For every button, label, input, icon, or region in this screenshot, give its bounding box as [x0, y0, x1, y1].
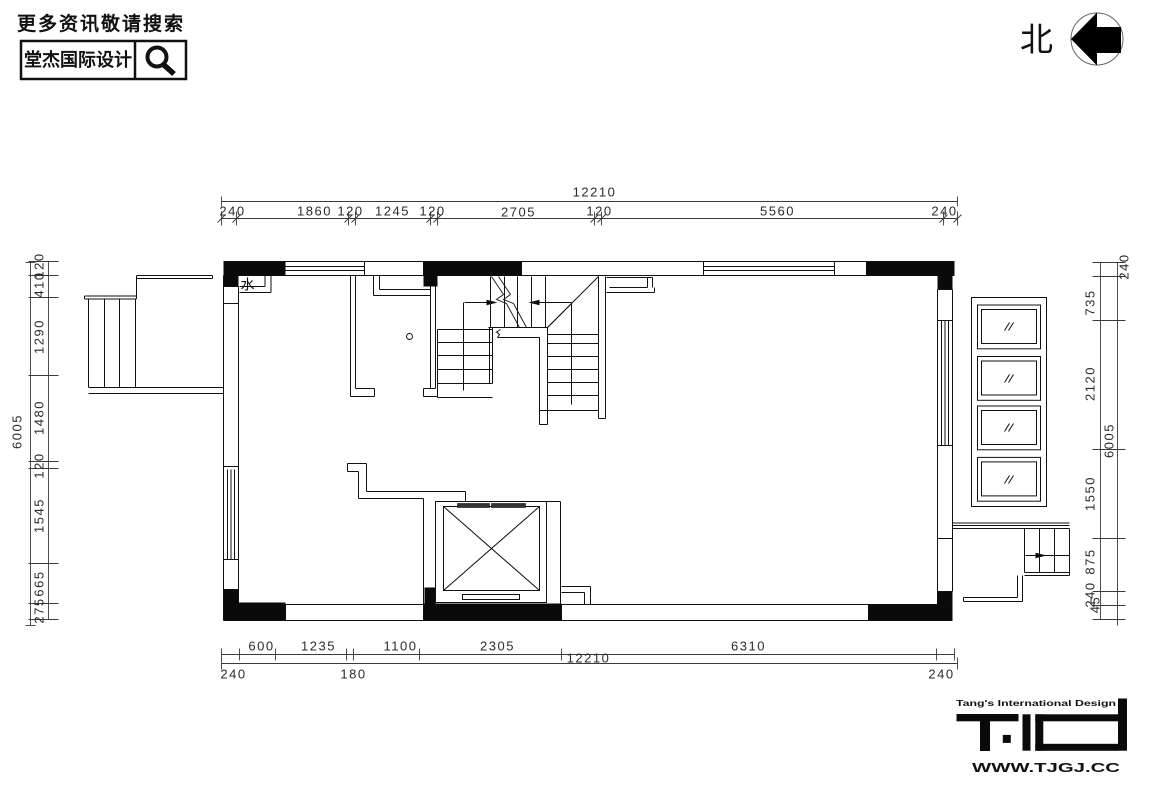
svg-text:180: 180: [340, 667, 366, 682]
svg-text:更多资讯敬请搜索: 更多资讯敬请搜索: [17, 12, 185, 35]
svg-text:275: 275: [32, 597, 47, 623]
svg-text:240: 240: [219, 204, 245, 219]
svg-text:1245: 1245: [375, 204, 410, 219]
svg-text:45: 45: [1088, 596, 1103, 613]
svg-text:875: 875: [1083, 548, 1098, 574]
svg-text:240: 240: [1117, 253, 1132, 279]
svg-text:1100: 1100: [384, 639, 418, 654]
svg-text:12210: 12210: [573, 185, 617, 200]
svg-text:堂杰国际设计: 堂杰国际设计: [24, 49, 132, 70]
svg-text:410: 410: [32, 271, 47, 297]
svg-text:1235: 1235: [301, 639, 336, 654]
svg-text:1545: 1545: [32, 498, 47, 533]
svg-text:水: 水: [241, 277, 255, 293]
svg-text:1480: 1480: [32, 400, 47, 435]
svg-text:735: 735: [1083, 289, 1098, 315]
svg-text:120: 120: [32, 452, 47, 478]
svg-text:240: 240: [928, 667, 954, 682]
svg-text:2305: 2305: [480, 639, 515, 654]
svg-text:1860: 1860: [297, 204, 332, 219]
svg-text:5560: 5560: [760, 204, 795, 219]
svg-text:120: 120: [419, 204, 445, 219]
svg-text:6310: 6310: [731, 639, 766, 654]
svg-text:6005: 6005: [10, 414, 25, 449]
svg-text:1550: 1550: [1083, 476, 1098, 511]
svg-text:Tang's International Design: Tang's International Design: [956, 698, 1116, 708]
svg-text:12210: 12210: [567, 651, 611, 666]
svg-text:2705: 2705: [501, 205, 536, 220]
svg-text:120: 120: [586, 204, 612, 219]
svg-text:600: 600: [248, 639, 274, 654]
svg-text:665: 665: [32, 570, 47, 596]
svg-text:240: 240: [931, 204, 957, 219]
svg-text:北: 北: [1020, 21, 1053, 58]
svg-text:WWW.TJGJ.CC: WWW.TJGJ.CC: [972, 760, 1121, 775]
svg-text:2120: 2120: [1083, 366, 1098, 401]
svg-text:1290: 1290: [32, 319, 47, 354]
svg-text:120: 120: [337, 204, 363, 219]
svg-text:6005: 6005: [1102, 423, 1117, 458]
svg-text:240: 240: [220, 667, 246, 682]
